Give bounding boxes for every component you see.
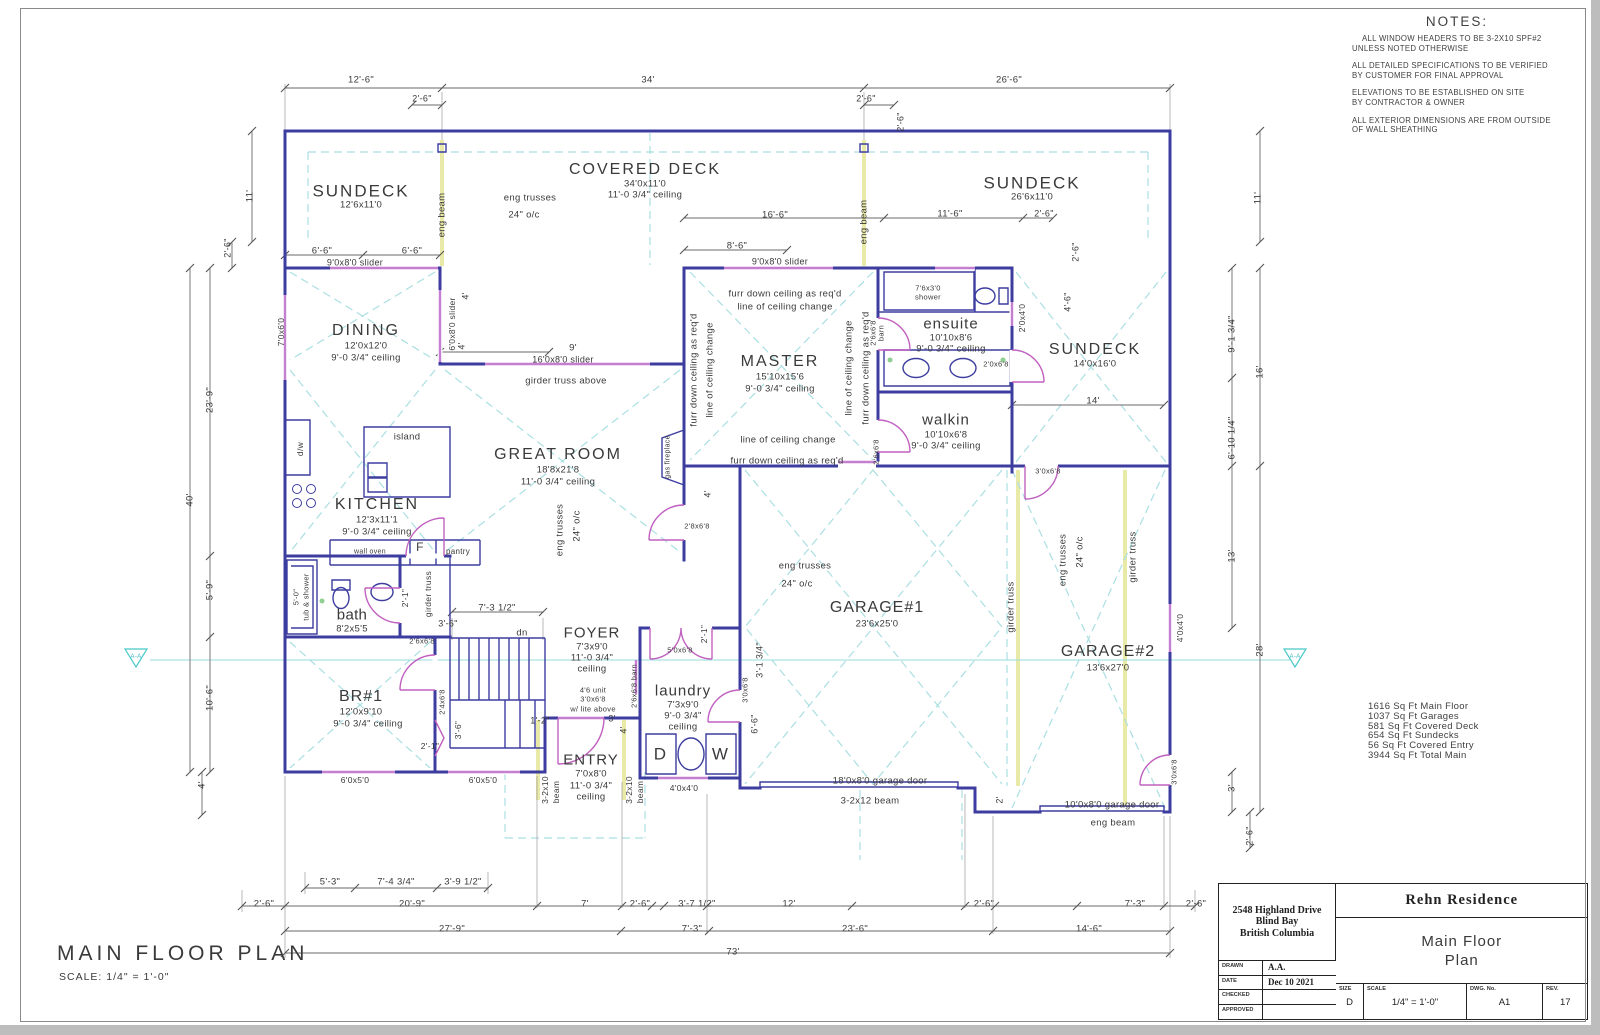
plan-label: furr down ceiling as req'd — [728, 289, 841, 299]
size-cell: SIZE D — [1336, 984, 1364, 1019]
plan-label: 11' — [1253, 192, 1263, 205]
plan-label: 3'-7 1/2" — [678, 899, 715, 909]
floor-plan-drawing — [0, 0, 1600, 1035]
title-block-field-row: APPROVED — [1219, 1005, 1336, 1020]
title-block-address: 2548 Highland DriveBlind BayBritish Colu… — [1219, 884, 1336, 961]
plan-label: eng trusses — [1058, 534, 1068, 586]
title-block: 2548 Highland DriveBlind BayBritish Colu… — [1218, 883, 1588, 1020]
plan-label: MASTER — [741, 354, 820, 370]
plan-label: 5'-0" — [292, 589, 300, 605]
plan-label: 6'-6" — [751, 714, 760, 733]
plan-label: COVERED DECK — [569, 162, 721, 178]
plan-label: 73' — [726, 947, 739, 957]
plan-label: furr down ceiling as req'd — [730, 456, 843, 466]
plan-label: 7'3x9'0 — [576, 642, 608, 652]
field-label: APPROVED — [1219, 1005, 1263, 1020]
plan-label: 2'0x4'0 — [1018, 304, 1027, 333]
plan-label: 12'0x12'0 — [345, 341, 388, 351]
plan-label: 6'-6" — [402, 246, 422, 256]
plan-label: 2'-6" — [1246, 826, 1255, 845]
plan-label: 10'0x8'0 garage door — [1065, 800, 1160, 810]
plan-label: 13'6x27'0 — [1087, 663, 1130, 673]
plan-label: 7'-3 1/2" — [478, 603, 515, 613]
plan-label: 15'10x15'6 — [756, 372, 804, 382]
plan-label: BR#1 — [339, 689, 383, 705]
project-name: Rehn Residence — [1336, 884, 1588, 918]
plan-label: 7' — [581, 899, 589, 909]
plan-label: 9'-0 3/4" ceiling — [911, 441, 980, 451]
plan-label: dn — [516, 628, 527, 638]
plan-label: 6'0x5'0 — [341, 776, 370, 785]
plan-label: 7'-3" — [1125, 899, 1145, 909]
plan-label: girder truss above — [525, 376, 606, 386]
plan-scale: SCALE: 1/4" = 1'-0" — [59, 971, 169, 983]
plan-label: 24" o/c — [781, 579, 812, 589]
plan-label: 10'10x6'8 — [925, 430, 968, 440]
title-block-field-row: DATEDec 10 2021 — [1219, 976, 1336, 991]
plan-label: GREAT ROOM — [494, 447, 622, 463]
plan-label: wall oven — [354, 549, 386, 556]
plan-label: 4' — [458, 342, 467, 349]
plan-label: 16'0x8'0 slider — [532, 356, 593, 365]
plan-label: 4'-6" — [1064, 292, 1073, 311]
plan-label: 14'0x16'0 — [1074, 359, 1117, 369]
dwg-value: A1 — [1467, 997, 1542, 1008]
title-block-field-row: DRAWNA.A. — [1219, 961, 1336, 976]
plan-label: ceiling — [577, 664, 606, 674]
plan-label: 9'-0 3/4" — [664, 711, 701, 721]
plan-label: 34'0x11'0 — [624, 179, 666, 189]
plan-label: 2'-6" — [1034, 210, 1053, 219]
rev-label: REV. — [1546, 986, 1559, 992]
plan-label: 13' — [1227, 549, 1237, 562]
plan-label: 2'8x6'8 — [684, 522, 709, 530]
plan-label: 11' — [245, 190, 255, 203]
plan-label: 2'-6" — [224, 238, 233, 257]
plan-label: walkin — [922, 413, 970, 428]
plan-label: 3'-1 3/4" — [756, 642, 765, 678]
plan-label: furr down ceiling as req'd — [689, 313, 699, 426]
plan-label: 9'-0 3/4" ceiling — [342, 527, 411, 537]
plan-label: beam — [636, 781, 645, 803]
plan-label: 3' — [608, 715, 615, 724]
plan-label: 2'6x6'8 — [409, 637, 434, 645]
plan-label: 3-2x12 beam — [841, 796, 900, 806]
plan-label: girder truss — [1128, 531, 1138, 582]
plan-label: 3'0x6'8 — [1170, 759, 1178, 784]
plan-label: 14' — [1086, 396, 1099, 406]
plan-label: 2'-6" — [897, 112, 906, 131]
plan-title: MAIN FLOOR PLAN — [57, 942, 308, 966]
plan-label: D — [654, 746, 667, 763]
plan-label: 23'6x25'0 — [856, 619, 899, 629]
plan-label: 5'0x6'8 — [667, 646, 692, 654]
plan-label: d/w — [296, 442, 305, 456]
plan-label: A-A — [1290, 654, 1301, 660]
rev-cell: REV. 17 — [1543, 984, 1588, 1019]
plan-label: 4' — [462, 292, 471, 299]
field-value — [1263, 990, 1336, 1004]
plan-label: 40' — [185, 493, 195, 506]
title-block-field-row: CHECKED — [1219, 990, 1336, 1005]
plan-label: tub & shower — [302, 573, 310, 620]
note-item: ELEVATIONS TO BE ESTABLISHED ON SITE BY … — [1352, 88, 1562, 107]
plan-label: 12'-6" — [348, 75, 374, 85]
dwg-label: DWG. No. — [1470, 986, 1496, 992]
plan-label: w/ lite above — [570, 705, 616, 713]
rev-value: 17 — [1543, 997, 1588, 1008]
plan-label: 2'-6" — [856, 95, 875, 104]
plan-label: eng beam — [1091, 818, 1136, 828]
page-edge-bottom — [0, 1025, 1600, 1035]
plan-label: 6'-10 1/4" — [1227, 416, 1237, 459]
plan-label: bath — [337, 608, 367, 623]
plan-label: ceiling — [668, 722, 697, 732]
field-value — [1263, 1005, 1336, 1020]
plan-label: 12'6x11'0 — [340, 200, 382, 210]
plan-label: 11'-0 3/4" — [571, 653, 613, 663]
plan-label: 12' — [782, 899, 795, 909]
plan-label: FOYER — [564, 626, 621, 641]
plan-label: 4' — [620, 726, 629, 733]
plan-label: eng beam — [859, 200, 869, 245]
notes-title: NOTES: — [1352, 14, 1562, 29]
plan-label: 28' — [1255, 643, 1265, 656]
field-value: A.A. — [1263, 961, 1336, 975]
plan-label: 2'-1" — [421, 742, 439, 751]
plan-label: 24" o/c — [572, 510, 582, 541]
plan-label: 2'-6" — [412, 95, 431, 104]
plan-label: 2' — [996, 796, 1005, 803]
plan-label: 3'0x6'8 — [580, 695, 605, 703]
plan-label: 34' — [641, 75, 654, 85]
plan-label: 4' — [704, 490, 713, 497]
plan-label: girder truss — [1006, 581, 1016, 632]
plan-label: 16'-6" — [762, 210, 788, 220]
plan-label: 10'10x8'6 — [930, 333, 973, 343]
dwg-cell: DWG. No. A1 — [1467, 984, 1543, 1019]
plan-label: 5'-9" — [205, 580, 215, 600]
plan-label: girder truss — [424, 571, 433, 617]
field-label: CHECKED — [1219, 990, 1263, 1004]
plan-label: A-A — [131, 654, 142, 660]
plan-label: 3'-6" — [454, 721, 463, 739]
plan-label: 2'6x6'8 — [872, 439, 880, 464]
drawing-title-line: Main Floor — [1421, 932, 1502, 951]
plan-label: 2'-6" — [254, 899, 274, 909]
title-block-meta: SIZE D SCALE 1/4" = 1'-0" DWG. No. A1 RE… — [1336, 984, 1588, 1019]
plan-label: 18'8x21'8 — [537, 465, 580, 475]
plan-label: 3-2x10 — [541, 776, 550, 804]
plan-label: 9'-0 3/4" ceiling — [916, 344, 985, 354]
address-line: Blind Bay — [1256, 916, 1299, 928]
drawing-title: Main FloorPlan — [1336, 918, 1588, 984]
plan-label: pantry — [446, 548, 470, 556]
size-value: D — [1336, 997, 1363, 1008]
plan-label: DINING — [332, 323, 400, 339]
plan-label: 3'0x6'8 — [741, 677, 749, 702]
scale-value: 1/4" = 1'-0" — [1364, 997, 1466, 1008]
plan-label: gas fireplace — [665, 435, 672, 479]
area-summary: 1616 Sq Ft Main Floor1037 Sq Ft Garages5… — [1368, 702, 1479, 761]
plan-label: ENTRY — [563, 753, 619, 768]
plan-label: 2'0x6'8 — [983, 360, 1008, 368]
plan-label: barn — [877, 325, 885, 341]
plan-label: 24" o/c — [508, 210, 539, 220]
plan-label: 9'-1 3/4" — [1227, 315, 1237, 352]
plan-label: 6'0x5'0 — [469, 776, 498, 785]
plan-label: 12'0x9'10 — [340, 707, 383, 717]
plan-label: 12'3x11'1 — [356, 515, 398, 525]
plan-label: 14'-6" — [1076, 924, 1102, 934]
plan-label: 24" o/c — [1075, 536, 1085, 567]
plan-label: 27'-9" — [439, 924, 465, 934]
plan-label: F — [416, 541, 424, 553]
plan-label: 26'-6" — [996, 75, 1022, 85]
plan-label: 11'-0 3/4" — [570, 781, 612, 791]
plan-label: 6'0x8'0 slider — [448, 297, 457, 350]
note-item: ALL WINDOW HEADERS TO BE 3-2X10 SPF#2 UN… — [1352, 34, 1562, 53]
plan-label: 8'-6" — [727, 241, 747, 251]
size-label: SIZE — [1339, 986, 1351, 992]
plan-label: 7'-3" — [682, 924, 702, 934]
plan-label: 2'-6" — [630, 899, 650, 909]
plan-label: 7'3x9'0 — [667, 700, 699, 710]
plan-label: SUNDECK — [983, 175, 1080, 192]
plan-label: 9'-0 3/4" ceiling — [333, 719, 402, 729]
plan-label: 3-2x10 — [625, 776, 634, 804]
notes-panel: NOTES: ALL WINDOW HEADERS TO BE 3-2X10 S… — [1352, 14, 1562, 143]
plan-label: 1'-2" — [530, 717, 549, 726]
plan-label: 20'-9" — [399, 899, 425, 909]
address-line: British Columbia — [1240, 928, 1314, 940]
field-label: DRAWN — [1219, 961, 1263, 975]
plan-label: 2'6x6'8 barn — [630, 664, 638, 708]
address-line: 2548 Highland Drive — [1233, 905, 1322, 917]
plan-label: SUNDECK — [1049, 342, 1141, 358]
note-item: ALL DETAILED SPECIFICATIONS TO BE VERIFI… — [1352, 61, 1562, 80]
plan-label: SUNDECK — [312, 183, 409, 200]
plan-label: 2'-1" — [401, 589, 410, 607]
plan-label: island — [394, 432, 421, 442]
plan-label: 7'0x6'0 — [277, 318, 286, 347]
plan-label: ceiling — [576, 792, 605, 802]
plan-label: 2'4x6'8 — [438, 689, 446, 714]
plan-label: 7'6x3'0 — [915, 284, 940, 292]
plan-label: 4'0x4'0 — [1176, 614, 1185, 643]
plan-label: 3' — [1227, 784, 1237, 792]
plan-label: 2'-1" — [700, 625, 709, 643]
plan-label: line of ceiling change — [705, 322, 715, 417]
plan-label: eng trusses — [779, 561, 831, 571]
plan-label: ensuite — [923, 317, 978, 332]
plan-label: eng trusses — [504, 193, 556, 203]
plan-label: GARAGE#1 — [830, 600, 924, 616]
plan-label: 18'0x8'0 garage door — [833, 776, 928, 786]
plan-label: line of ceiling change — [844, 320, 854, 415]
plan-label: eng beam — [437, 193, 447, 238]
plan-label: 3'0x6'8 — [1035, 467, 1060, 475]
plan-label: beam — [552, 781, 561, 803]
plan-label: W — [712, 746, 728, 763]
note-item: ALL EXTERIOR DIMENSIONS ARE FROM OUTSIDE… — [1352, 116, 1562, 135]
plan-label: 11'-0 3/4" ceiling — [608, 190, 682, 200]
plan-label: 9'0x8'0 slider — [327, 259, 383, 268]
plan-label: 11'-0 3/4" ceiling — [521, 477, 595, 487]
title-block-fields: DRAWNA.A.DATEDec 10 2021CHECKEDAPPROVED — [1219, 961, 1336, 1019]
plan-label: 7'0x8'0 — [575, 769, 607, 779]
scale-cell: SCALE 1/4" = 1'-0" — [1364, 984, 1467, 1019]
field-label: DATE — [1219, 976, 1263, 990]
plan-label: 9'-0 3/4" ceiling — [745, 384, 814, 394]
plan-label: 2'-6" — [1186, 899, 1206, 909]
area-summary-line: 3944 Sq Ft Total Main — [1368, 751, 1479, 761]
plan-label: GARAGE#2 — [1061, 644, 1155, 660]
plan-label: 7'-4 3/4" — [377, 877, 414, 887]
plan-label: 8'2x5'5 — [336, 624, 368, 634]
scale-label: SCALE — [1367, 986, 1386, 992]
plan-label: 26'6x11'0 — [1011, 192, 1053, 202]
plan-label: eng trusses — [555, 504, 565, 556]
plan-label: 10'-6" — [205, 685, 215, 711]
plan-label: 2'-6" — [1072, 242, 1081, 261]
plan-label: KITCHEN — [335, 497, 419, 513]
plan-label: 9'-0 3/4" ceiling — [331, 353, 400, 363]
drawing-sheet: 12'-6"2'-6"34'2'-6"26'-6"2'-6"SUNDECK12'… — [0, 0, 1600, 1035]
plan-label: 23'-9" — [205, 387, 215, 413]
plan-label: 4'0x4'0 — [670, 784, 699, 793]
page-edge-right — [1591, 0, 1600, 1035]
plan-label: shower — [915, 293, 941, 301]
plan-label: 2'-6" — [974, 899, 994, 909]
plan-label: laundry — [655, 684, 711, 699]
plan-label: 3'-9 1/2" — [444, 877, 481, 887]
plan-label: 6'-6" — [312, 246, 332, 256]
plan-label: line of ceiling change — [737, 302, 832, 312]
plan-label: 4'6 unit — [580, 686, 606, 694]
plan-label: line of ceiling change — [740, 435, 835, 445]
plan-label: 3'-6" — [438, 620, 457, 629]
plan-label: 11'-6" — [937, 209, 962, 219]
drawing-title-line: Plan — [1445, 951, 1479, 970]
plan-label: 5'-3" — [320, 877, 340, 887]
plan-label: 9'0x8'0 slider — [752, 258, 808, 267]
plan-label: 23'-6" — [842, 924, 868, 934]
plan-label: 9' — [569, 343, 577, 353]
plan-label: 4' — [197, 781, 207, 789]
field-value: Dec 10 2021 — [1263, 976, 1336, 990]
plan-label: 16' — [1255, 365, 1265, 378]
